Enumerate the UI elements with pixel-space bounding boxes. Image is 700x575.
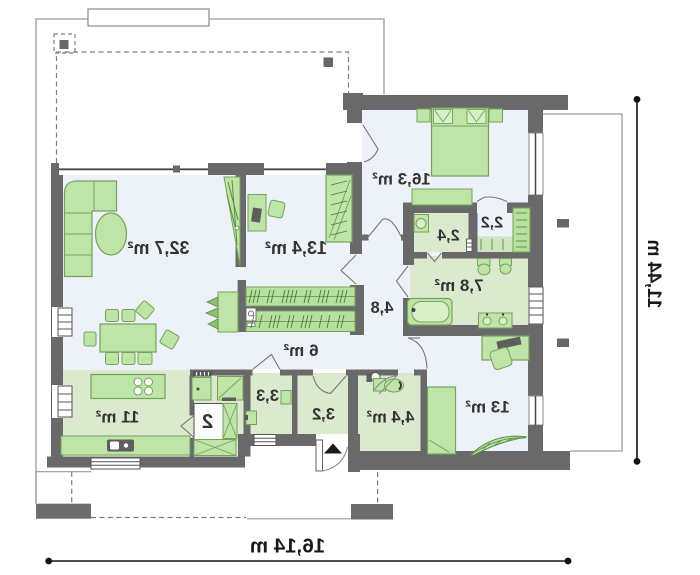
svg-text:6 m²: 6 m² <box>283 341 318 360</box>
svg-text:7,8 m²: 7,8 m² <box>434 276 483 295</box>
svg-text:13 m²: 13 m² <box>465 398 510 417</box>
svg-text:13,4 m²: 13,4 m² <box>265 238 327 258</box>
svg-text:11,44 m: 11,44 m <box>643 240 664 309</box>
svg-text:3,3: 3,3 <box>256 387 279 405</box>
svg-text:2,2: 2,2 <box>481 215 503 232</box>
svg-text:11 m²: 11 m² <box>95 408 139 427</box>
svg-text:4,4 m²: 4,4 m² <box>366 409 414 427</box>
svg-text:2,4: 2,4 <box>437 228 459 245</box>
svg-text:2: 2 <box>202 411 213 433</box>
svg-text:16,3 m²: 16,3 m² <box>372 170 431 189</box>
svg-text:4,8: 4,8 <box>371 299 394 317</box>
svg-text:32,7 m²: 32,7 m² <box>127 238 189 258</box>
svg-text:3,2: 3,2 <box>312 406 335 424</box>
svg-text:16,14 m: 16,14 m <box>250 535 325 558</box>
